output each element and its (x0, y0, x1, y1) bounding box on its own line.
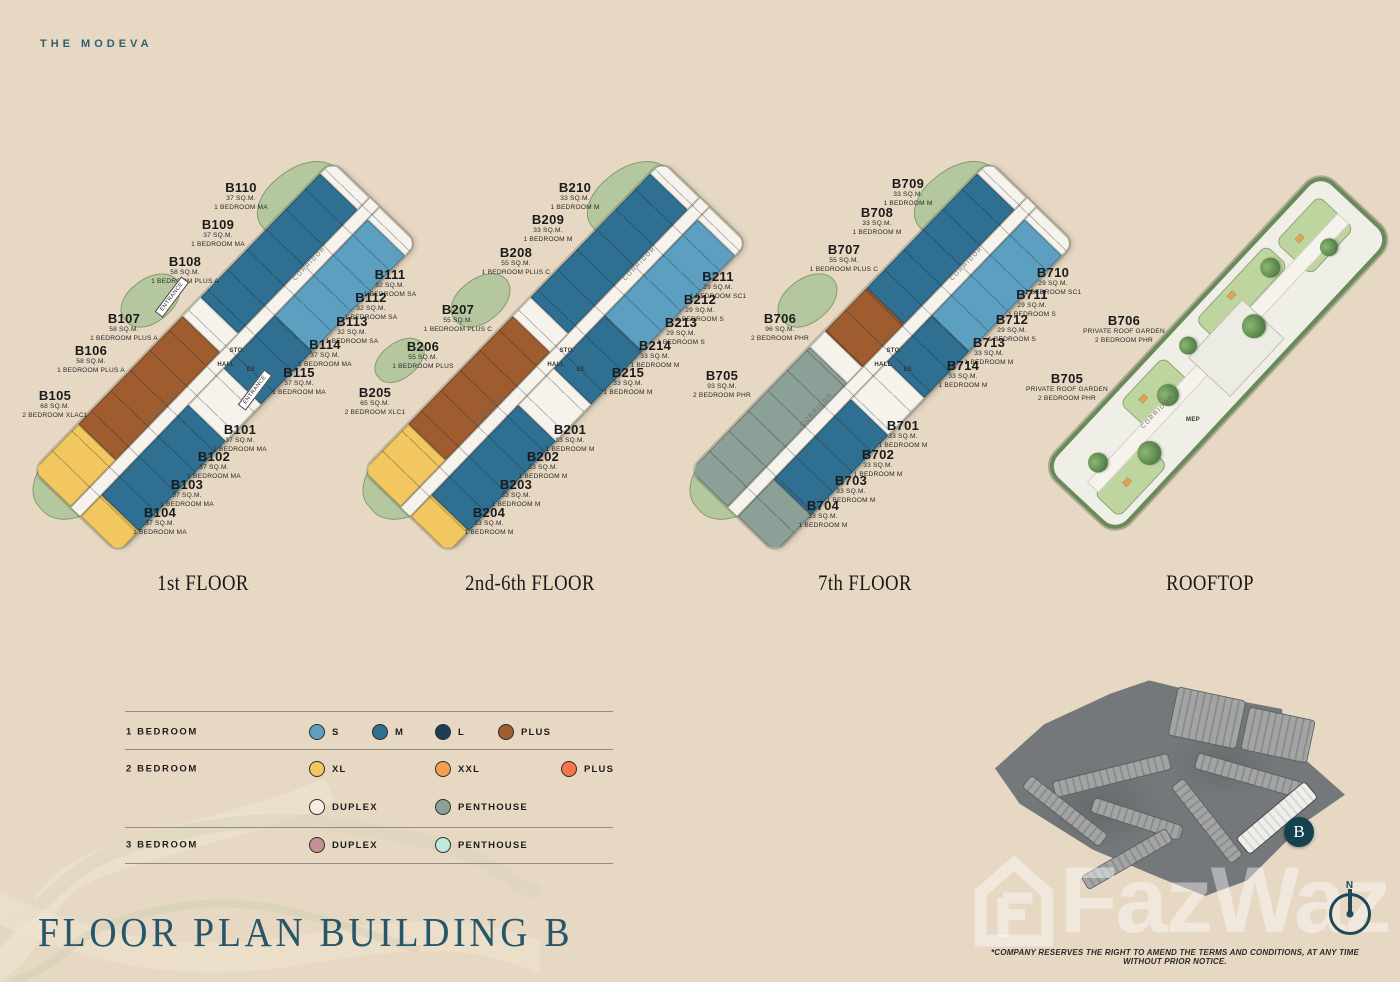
swatch-2bed-xl (309, 761, 325, 777)
building-b-marker: B (1284, 817, 1314, 847)
legend-item-1bed-s: S (309, 724, 340, 740)
legend-item-2bed-duplex: DUPLEX (309, 799, 378, 815)
unit-label-b704: B70433 SQ.M.1 BEDROOM M (798, 498, 847, 530)
unit-label-b105: B10568 SQ.M.2 BEDROOM XLAC1 (22, 388, 87, 420)
unit-label-b115: B11537 SQ.M.1 BEDROOM MA (272, 365, 326, 397)
swatch-1bed-m (372, 724, 388, 740)
lift-label: EE (247, 367, 256, 373)
unit-label-b215: B21533 SQ.M.1 BEDROOM M (603, 365, 652, 397)
compass: N (1326, 880, 1374, 942)
lift-label: EE (577, 367, 586, 373)
unit-label-b106: B10658 SQ.M.1 BEDROOM PLUS A (57, 343, 125, 375)
floor-title-rooftop: ROOFTOP (1166, 570, 1254, 596)
unit-label-b708: B70833 SQ.M.1 BEDROOM M (852, 205, 901, 237)
compass-ring (1329, 893, 1371, 935)
legend-row-2bedroom: 2 BEDROOM (126, 764, 198, 775)
legend-item-2bed-plus: PLUS (561, 761, 614, 777)
floor-title-1st: 1st FLOOR (157, 570, 249, 596)
unit-label-b205: B20565 SQ.M.2 BEDROOM XLC1 (345, 385, 406, 417)
unit-label-b206: B20655 SQ.M.1 BEDROOM PLUS (392, 339, 453, 371)
unit-label-b107: B10758 SQ.M.1 BEDROOM PLUS A (90, 311, 158, 343)
legend-item-1bed-l: L (435, 724, 465, 740)
swatch-2bed-penthouse (435, 799, 451, 815)
unit-label-roof-b706: B706PRIVATE ROOF GARDEN2 BEDROOM PHR (1083, 313, 1165, 345)
swatch-2bed-plus (561, 761, 577, 777)
swatch-3bed-duplex (309, 837, 325, 853)
unit-label-roof-b705: B705PRIVATE ROOF GARDEN2 BEDROOM PHR (1026, 371, 1108, 403)
unit-label-b208: B20855 SQ.M.1 BEDROOM PLUS C (482, 245, 550, 277)
legend-divider (125, 863, 613, 864)
hall-label: HALL (874, 362, 891, 368)
floor-title-2nd-6th: 2nd-6th FLOOR (465, 570, 595, 596)
site-map: B (995, 676, 1345, 896)
storage-label: STO. (229, 348, 244, 354)
legend-item-1bed-m: M (372, 724, 404, 740)
legend-divider (125, 749, 613, 750)
page-title: FLOOR PLAN BUILDING B (38, 908, 573, 956)
hall-label: HALL (217, 362, 234, 368)
hall-label: HALL (547, 362, 564, 368)
swatch-3bed-penthouse (435, 837, 451, 853)
legend-item-2bed-xl: XL (309, 761, 347, 777)
unit-label-b707: B70755 SQ.M.1 BEDROOM PLUS C (810, 242, 878, 274)
lift-label: EE (904, 367, 913, 373)
legend-divider (125, 827, 613, 828)
legend-row-1bedroom: 1 BEDROOM (126, 727, 198, 738)
unit-label-b104: B10437 SQ.M.1 BEDROOM MA (133, 505, 187, 537)
swatch-1bed-s (309, 724, 325, 740)
legend-item-2bed-xxl: XXL (435, 761, 480, 777)
unit-label-b709: B70933 SQ.M.1 BEDROOM M (883, 176, 932, 208)
unit-label-b110: B11037 SQ.M.1 BEDROOM MA (214, 180, 268, 212)
unit-label-b209: B20933 SQ.M.1 BEDROOM M (523, 212, 572, 244)
storage-label: STO. (559, 348, 574, 354)
compass-hub (1347, 911, 1354, 918)
unit-label-b109: B10937 SQ.M.1 BEDROOM MA (191, 217, 245, 249)
swatch-2bed-duplex (309, 799, 325, 815)
floor-title-7th: 7th FLOOR (818, 570, 912, 596)
unit-label-b210: B21033 SQ.M.1 BEDROOM M (550, 180, 599, 212)
swatch-1bed-l (435, 724, 451, 740)
swatch-2bed-xxl (435, 761, 451, 777)
disclaimer-text: *COMPANY RESERVES THE RIGHT TO AMEND THE… (975, 948, 1375, 966)
legend-item-1bed-plus: PLUS (498, 724, 551, 740)
legend-item-3bed-penthouse: PENTHOUSE (435, 837, 528, 853)
legend-divider (125, 711, 613, 712)
unit-label-b207: B20755 SQ.M.1 BEDROOM PLUS C (424, 302, 492, 334)
unit-label-b705: B70593 SQ.M.2 BEDROOM PHR (693, 368, 751, 400)
floor-plan-page: THE MODEVA (0, 0, 1400, 982)
storage-label: STO. (886, 348, 901, 354)
unit-label-b714: B71433 SQ.M.1 BEDROOM M (938, 358, 987, 390)
legend-item-2bed-penthouse: PENTHOUSE (435, 799, 528, 815)
unit-label-b701: B70133 SQ.M.1 BEDROOM M (878, 418, 927, 450)
unit-label-b204: B20433 SQ.M.1 BEDROOM M (464, 505, 513, 537)
swatch-1bed-plus (498, 724, 514, 740)
mep-label: MEP (1186, 417, 1200, 423)
unit-label-b706: B70696 SQ.M.2 BEDROOM PHR (751, 311, 809, 343)
legend-row-3bedroom: 3 BEDROOM (126, 840, 198, 851)
legend-item-3bed-duplex: DUPLEX (309, 837, 378, 853)
